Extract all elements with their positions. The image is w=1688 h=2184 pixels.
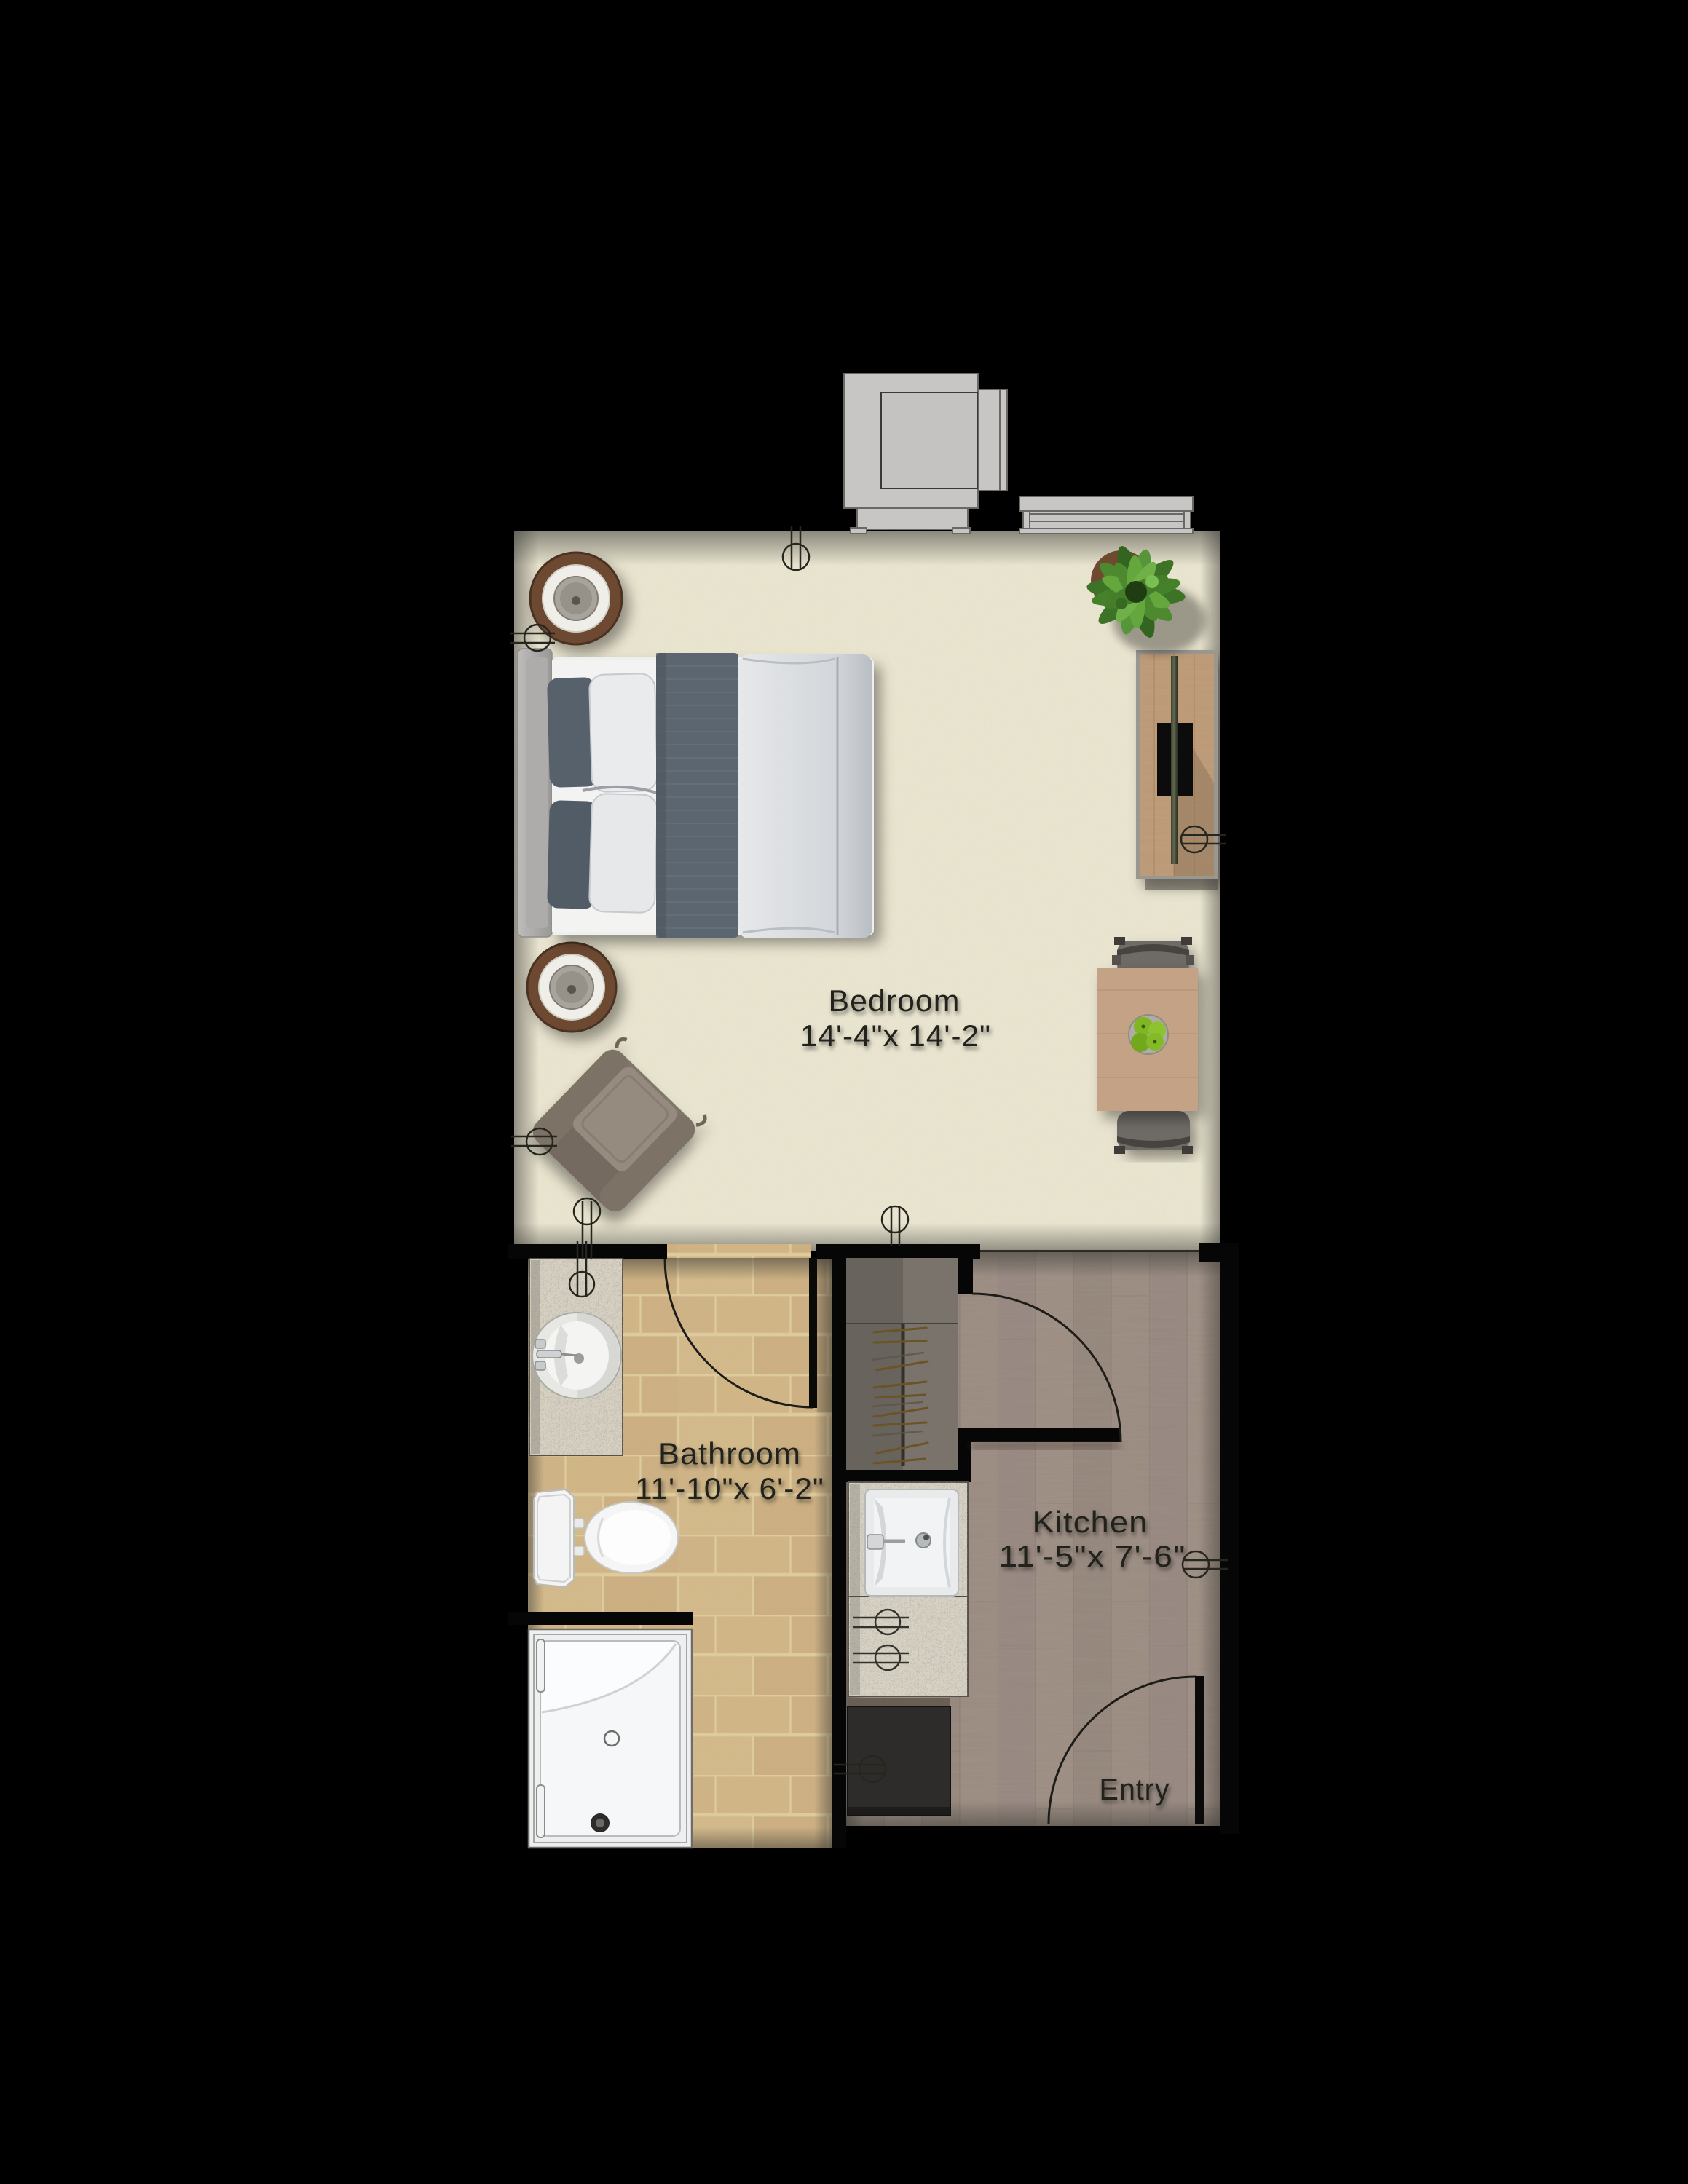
svg-text:Bathroom: Bathroom xyxy=(658,1436,801,1471)
svg-text:Bedroom: Bedroom xyxy=(829,984,961,1018)
svg-text:Entry: Entry xyxy=(1100,1772,1170,1806)
svg-text:14'-4"x 14'-2": 14'-4"x 14'-2" xyxy=(800,1018,991,1053)
svg-text:11'-10"x 6'-2": 11'-10"x 6'-2" xyxy=(635,1471,824,1506)
svg-text:11'-5"x 7'-6": 11'-5"x 7'-6" xyxy=(999,1539,1186,1573)
svg-text:Kitchen: Kitchen xyxy=(1033,1505,1148,1539)
